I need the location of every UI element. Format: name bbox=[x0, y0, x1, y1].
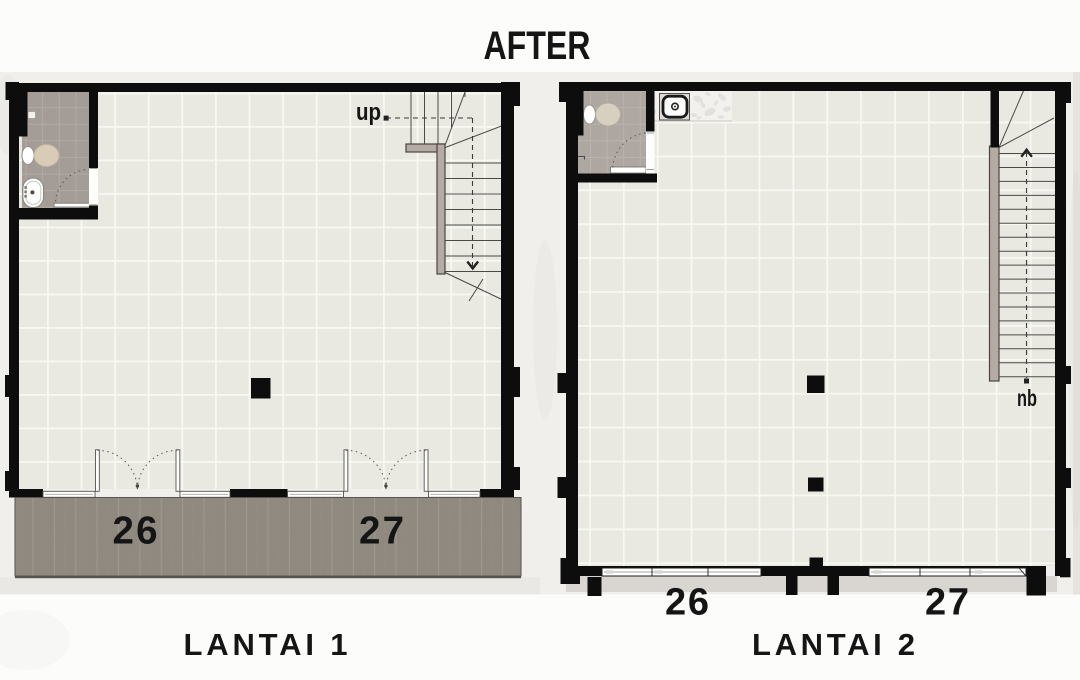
svg-text:AFTER: AFTER bbox=[484, 24, 591, 68]
svg-text:26: 26 bbox=[665, 582, 709, 624]
svg-text:LANTAI 1: LANTAI 1 bbox=[184, 627, 348, 662]
svg-text:LANTAI 2: LANTAI 2 bbox=[752, 627, 915, 662]
svg-text:27: 27 bbox=[925, 582, 969, 624]
svg-text:up: up bbox=[356, 99, 381, 126]
svg-text:nb: nb bbox=[1017, 385, 1037, 411]
